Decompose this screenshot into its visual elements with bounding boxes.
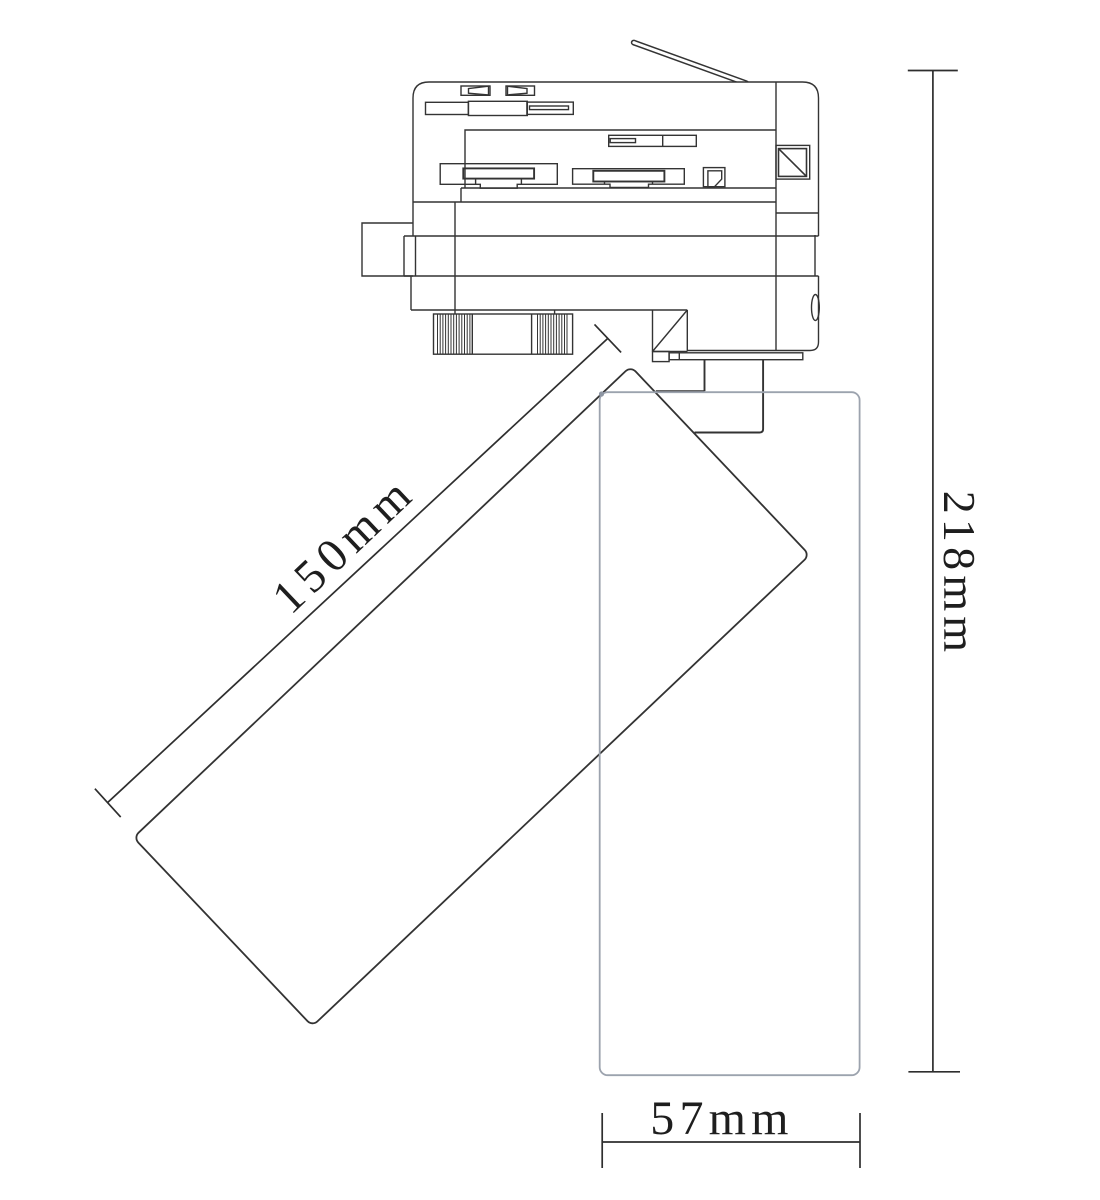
svg-text:218mm: 218mm [934,491,985,658]
svg-text:57mm: 57mm [650,1092,793,1145]
